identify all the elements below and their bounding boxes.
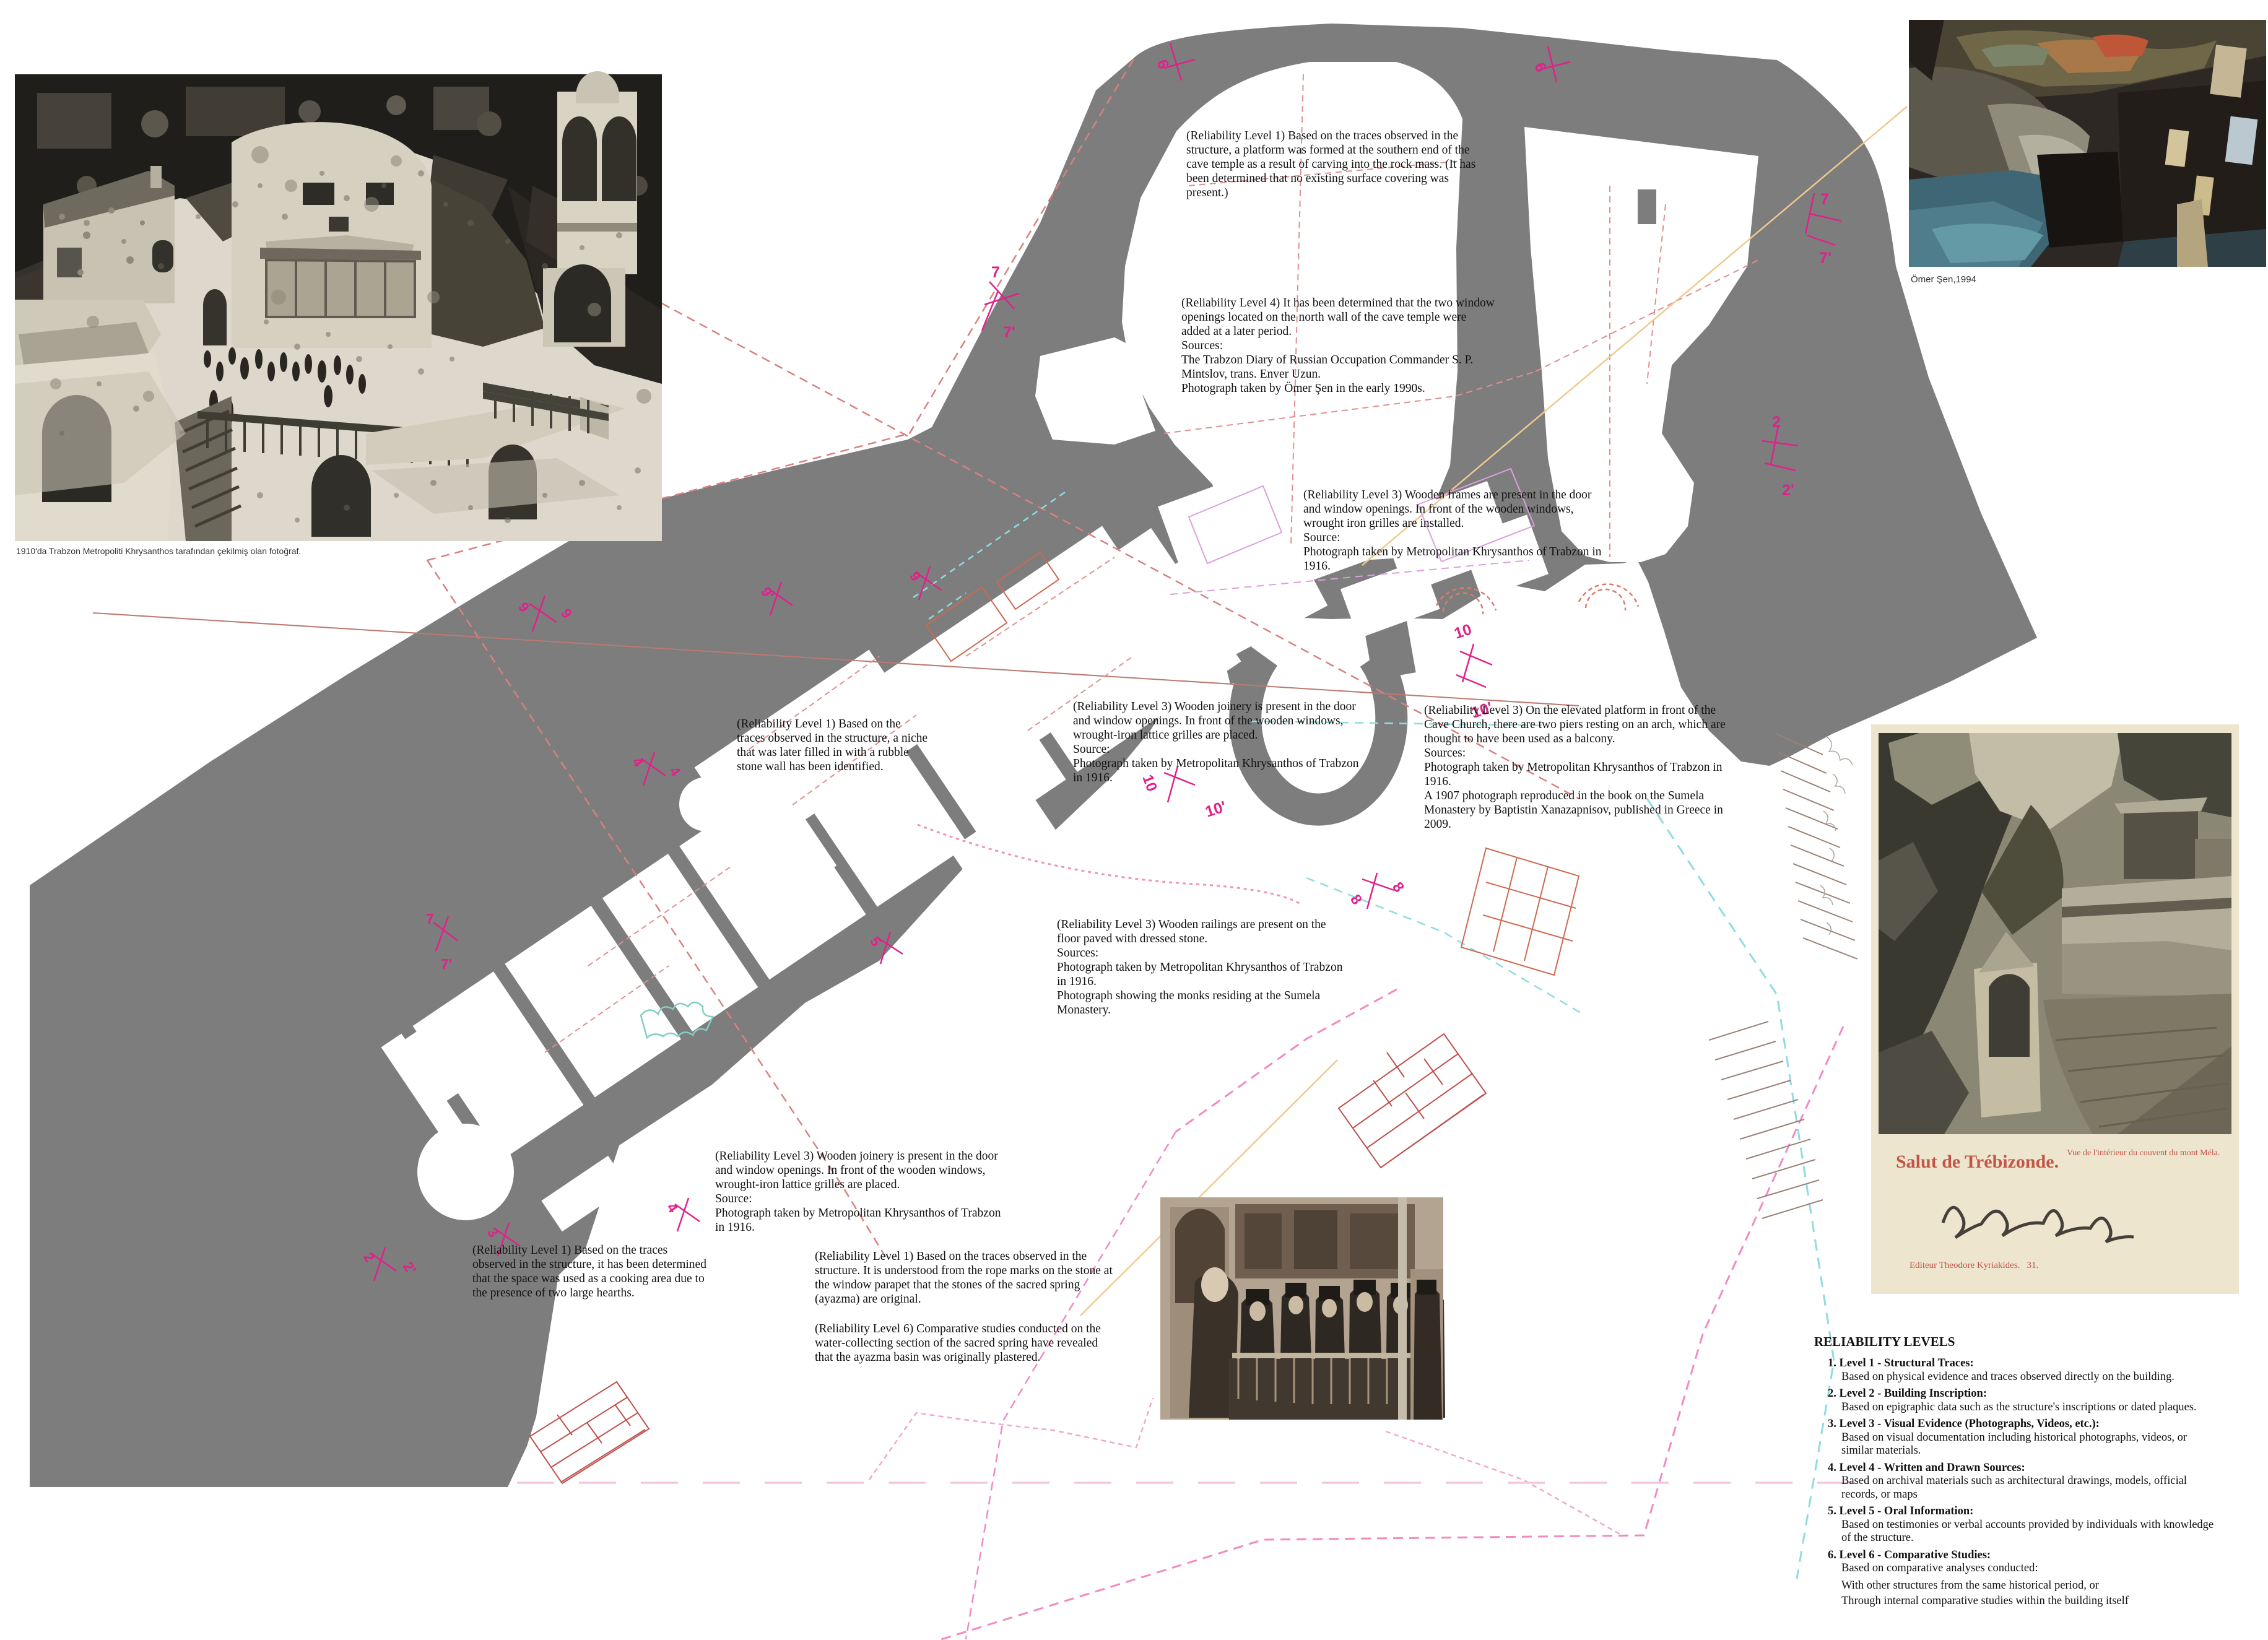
svg-text:8: 8 [1389, 879, 1407, 895]
svg-text:7': 7' [441, 956, 452, 972]
svg-text:7: 7 [991, 264, 1000, 281]
svg-text:2: 2 [1772, 414, 1781, 431]
svg-text:10': 10' [1203, 798, 1228, 821]
svg-text:Editeur Theodore Kyriakides.: Editeur Theodore Kyriakides. 31. [1910, 1260, 2038, 1270]
svg-text:4: 4 [664, 1200, 682, 1216]
svg-text:Salut de Trébizonde.: Salut de Trébizonde. [1896, 1152, 2059, 1172]
svg-text:8: 8 [1347, 892, 1365, 908]
svg-text:Vue de l'intérieur du couvent: Vue de l'intérieur du couvent du mont Mé… [2067, 1148, 2220, 1158]
svg-text:7': 7' [1819, 249, 1831, 267]
svg-text:7: 7 [1820, 191, 1829, 208]
svg-text:2': 2' [1782, 482, 1794, 499]
svg-text:7: 7 [426, 911, 434, 927]
svg-text:7': 7' [1003, 324, 1015, 341]
svg-text:10: 10 [1452, 620, 1474, 642]
